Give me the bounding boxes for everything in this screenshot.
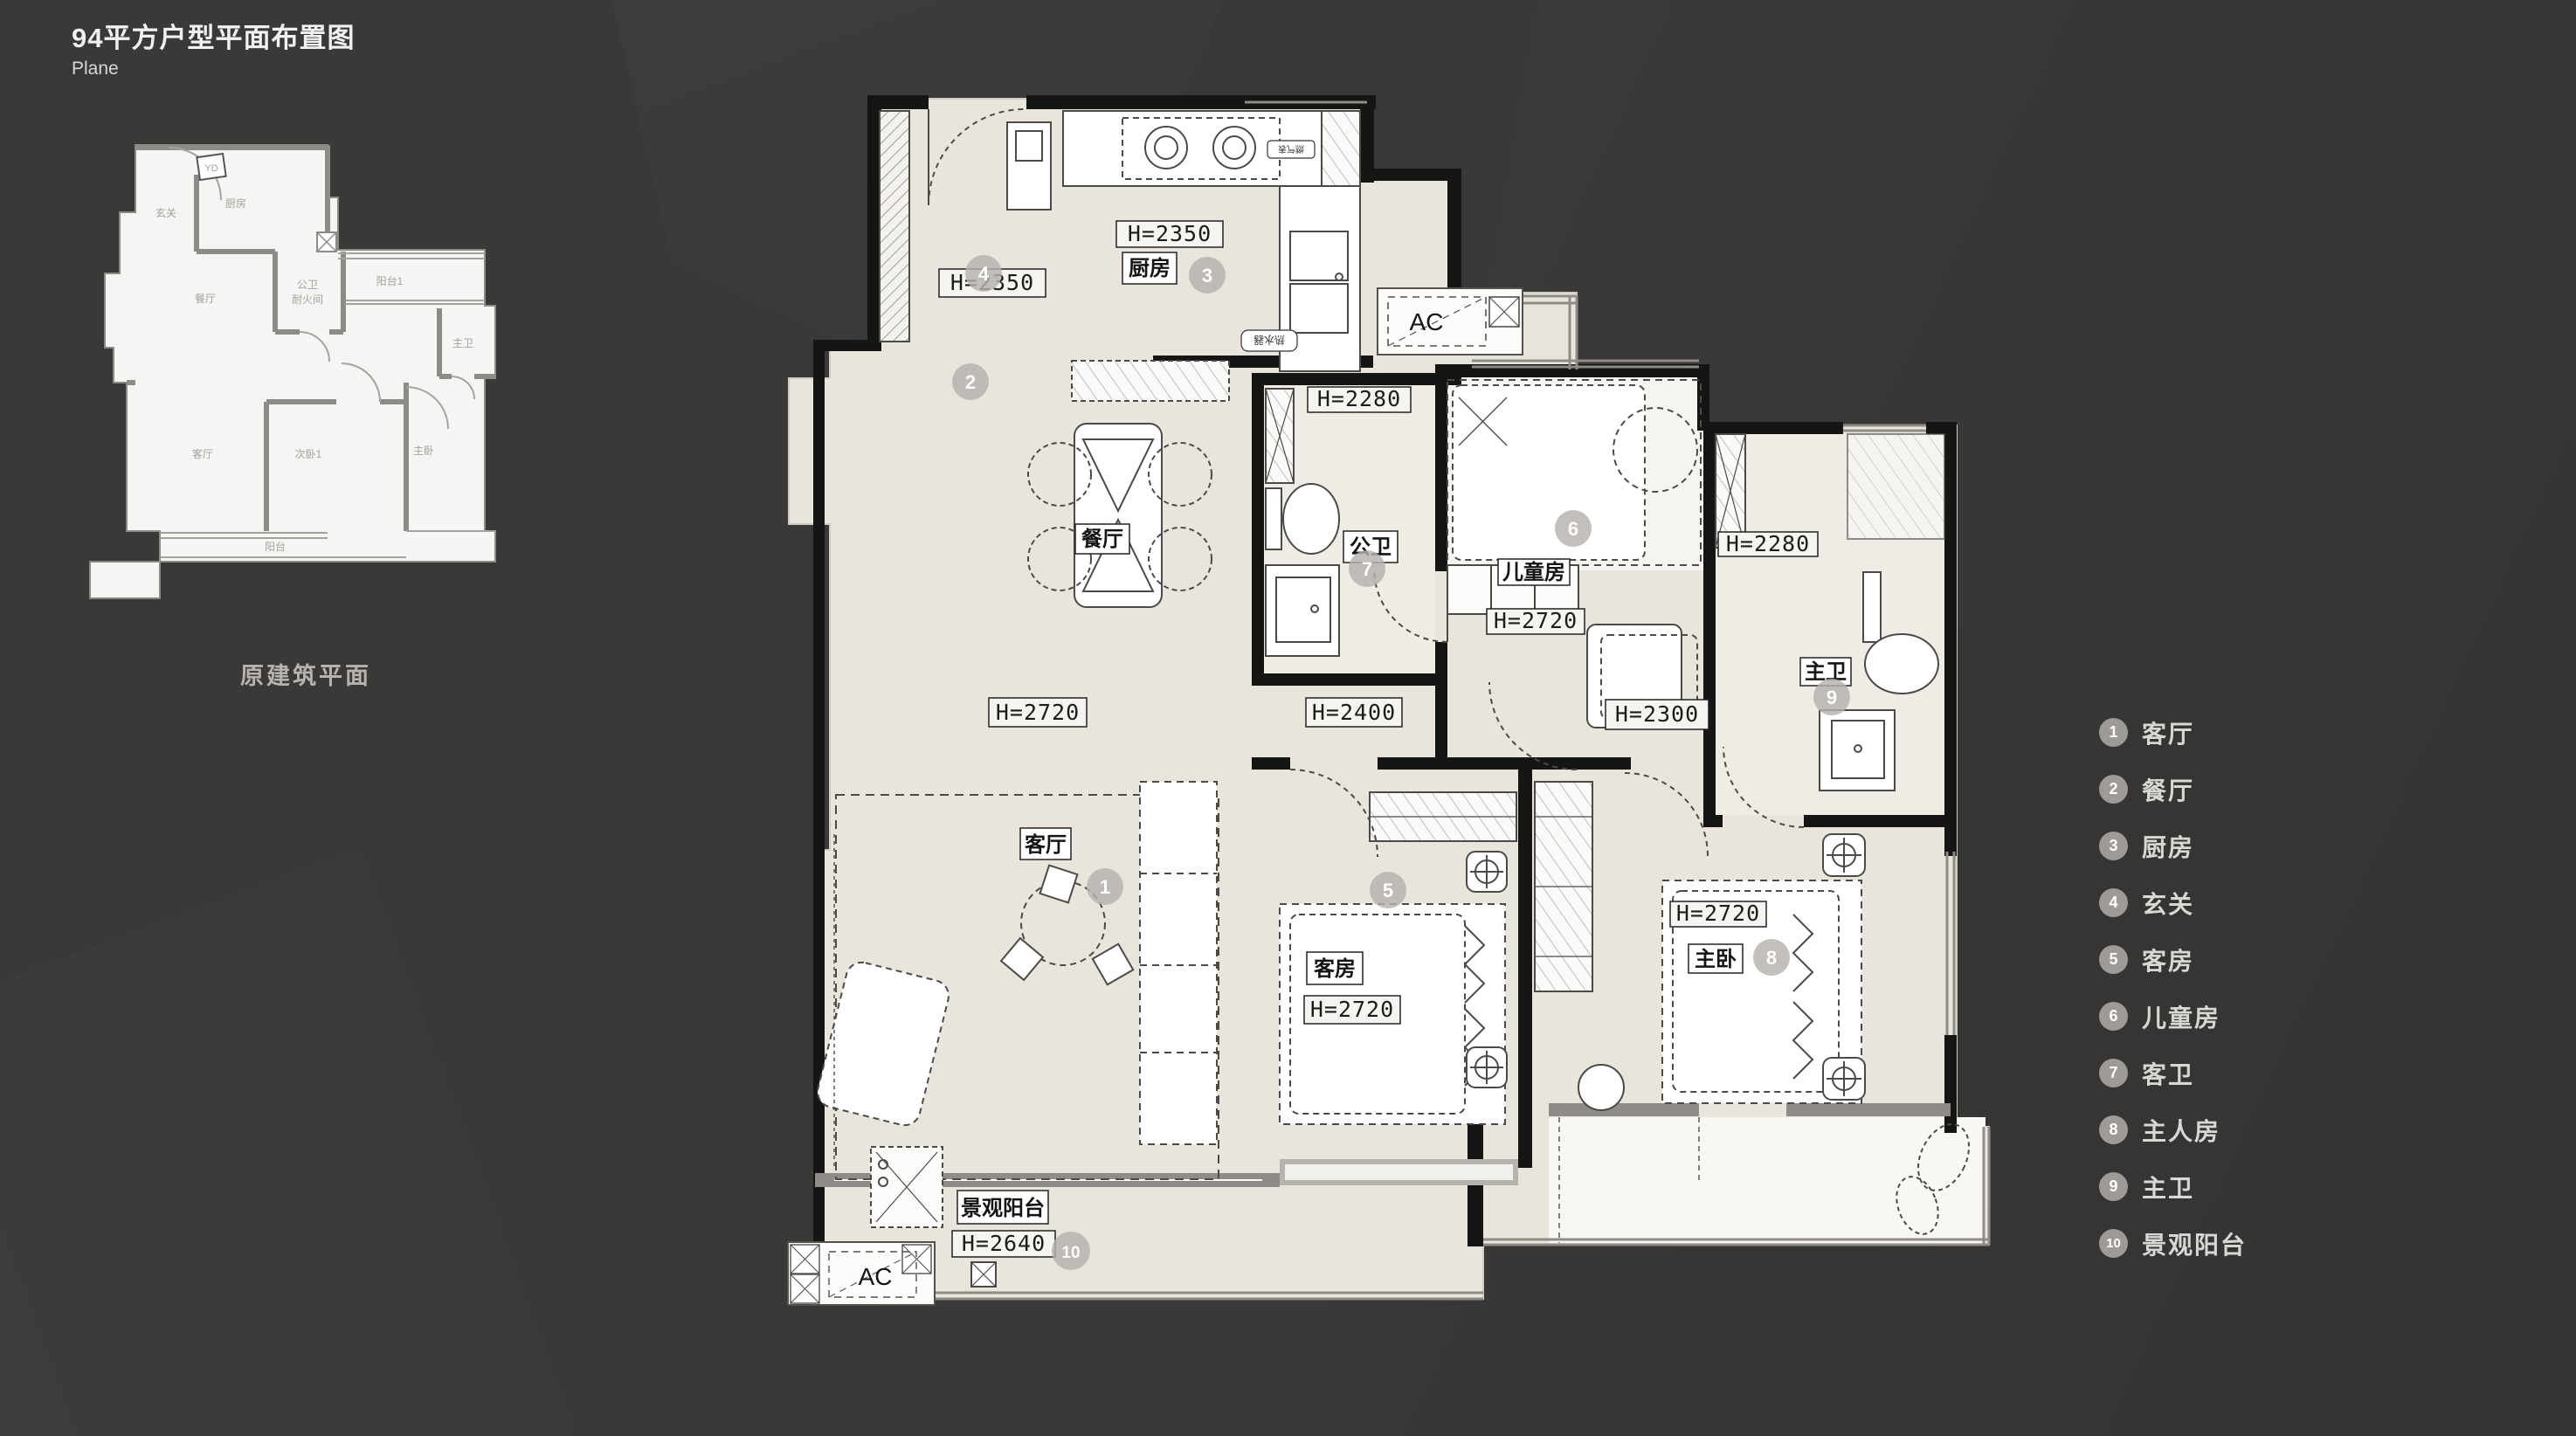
legend-label-guest-bath: 客卫 [2142, 1056, 2194, 1091]
page-title: 94平方户型平面布置图 [72, 16, 355, 55]
gas-meter-label: 燃气表 [1278, 143, 1304, 155]
ac-unit-top: AC [1378, 288, 1523, 355]
thumb-room-bath1: 公卫 [297, 279, 318, 291]
main-floorplan: AC AC 燃气表 热水器 H=2350 H=2350 厨房 餐厅 H=22 [756, 83, 1996, 1367]
badge-8: 8 [1766, 947, 1777, 969]
view-balcony-height-label: H=2640 [962, 1231, 1046, 1256]
living-label: 客厅 [1025, 832, 1067, 857]
thumb-room-kitchen: 厨房 [225, 197, 246, 210]
legend-item-view-balcony: 10 景观阳台 [2099, 1215, 2247, 1272]
badge-3: 3 [1202, 265, 1212, 287]
thumb-room-bath2: 耐火间 [292, 293, 323, 306]
original-plan-thumbnail: YD 玄关 厨房 餐厅 公卫 耐火间 阳台1 主卫 客厅 次卧1 主卧 阳台 [66, 121, 502, 627]
water-heater-label: 热水器 [1253, 334, 1285, 346]
legend-badge-5: 5 [2099, 945, 2128, 974]
legend-badge-9: 9 [2099, 1172, 2128, 1201]
legend-label-kitchen: 厨房 [2142, 829, 2194, 864]
legend-badge-4: 4 [2099, 888, 2128, 917]
legend-badge-8: 8 [2099, 1115, 2128, 1144]
thumb-room-bedroom2: 次卧1 [295, 448, 322, 460]
corridor-height-left: H=2720 [996, 700, 1080, 725]
kitchen-label: 厨房 [1129, 256, 1171, 280]
legend-label-entry: 玄关 [2142, 886, 2194, 921]
badge-10: 10 [1061, 1244, 1080, 1262]
legend-label-master-room: 主人房 [2142, 1113, 2220, 1148]
legend-item-dining: 2 餐厅 [2099, 761, 2247, 818]
legend-badge-6: 6 [2099, 1002, 2128, 1031]
view-balcony-label: 景观阳台 [961, 1196, 1045, 1220]
ac-bottom-label: AC [859, 1263, 893, 1290]
master-label: 主卧 [1695, 948, 1737, 971]
legend-label-dining: 餐厅 [2142, 772, 2194, 807]
kitchen-height-label: H=2350 [1128, 221, 1212, 246]
room-legend: 1 客厅 2 餐厅 3 厨房 4 玄关 5 客房 6 儿童房 7 客卫 8 主人… [2099, 704, 2247, 1272]
legend-badge-3: 3 [2099, 832, 2128, 860]
legend-label-view-balcony: 景观阳台 [2142, 1226, 2247, 1261]
original-plan-caption: 原建筑平面 [157, 657, 454, 691]
legend-label-guest-room: 客房 [2142, 942, 2194, 977]
page-subtitle: Plane [72, 59, 355, 79]
legend-item-kids-room: 6 儿童房 [2099, 988, 2247, 1045]
guest-bath-height-label: H=2280 [1317, 386, 1401, 411]
badge-6: 6 [1568, 518, 1578, 540]
legend-label-master-bath: 主卫 [2142, 1170, 2194, 1205]
legend-item-living: 1 客厅 [2099, 704, 2247, 761]
corridor-height-right: H=2300 [1615, 701, 1699, 727]
legend-badge-1: 1 [2099, 718, 2128, 747]
legend-item-master-bath: 9 主卫 [2099, 1158, 2247, 1215]
master-height-label: H=2720 [1676, 901, 1760, 926]
legend-badge-10: 10 [2099, 1229, 2128, 1258]
title-block: 94平方户型平面布置图 Plane [72, 16, 355, 79]
badge-4: 4 [978, 263, 990, 285]
corridor-height-mid: H=2400 [1312, 700, 1396, 725]
legend-item-kitchen: 3 厨房 [2099, 818, 2247, 874]
badge-7: 7 [1362, 558, 1372, 580]
guest-room-height-label: H=2720 [1310, 997, 1394, 1022]
badge-9: 9 [1827, 687, 1837, 708]
badge-1: 1 [1100, 876, 1110, 898]
thumb-room-masterbath: 主卫 [452, 337, 473, 349]
legend-item-guest-room: 5 客房 [2099, 931, 2247, 988]
legend-badge-7: 7 [2099, 1059, 2128, 1087]
thumb-room-balcony: 阳台 [265, 540, 286, 553]
thumb-room-dining: 餐厅 [195, 292, 216, 305]
badge-5: 5 [1383, 880, 1393, 901]
master-bath-height-label: H=2280 [1726, 531, 1810, 556]
dining-label: 餐厅 [1081, 528, 1123, 551]
legend-item-guest-bath: 7 客卫 [2099, 1045, 2247, 1101]
legend-item-entry: 4 玄关 [2099, 874, 2247, 931]
thumb-room-master: 主卧 [413, 445, 434, 457]
thumb-room-entry: 玄关 [155, 206, 176, 219]
guest-room-label: 客房 [1314, 956, 1356, 981]
ac-unit-bottom: AC [788, 1242, 935, 1305]
thumb-room-balcony1: 阳台1 [376, 274, 404, 287]
thumb-room-living: 客厅 [192, 447, 213, 460]
ac-top-label: AC [1410, 308, 1444, 335]
legend-badge-2: 2 [2099, 775, 2128, 804]
thumb-meter-label: YD [204, 163, 218, 174]
kids-room-label: 儿童房 [1502, 560, 1565, 584]
legend-label-living: 客厅 [2142, 715, 2194, 750]
legend-item-master-room: 8 主人房 [2099, 1101, 2247, 1158]
kids-room-height-label: H=2720 [1494, 608, 1578, 633]
badge-2: 2 [965, 371, 976, 393]
legend-label-kids-room: 儿童房 [2142, 999, 2220, 1034]
